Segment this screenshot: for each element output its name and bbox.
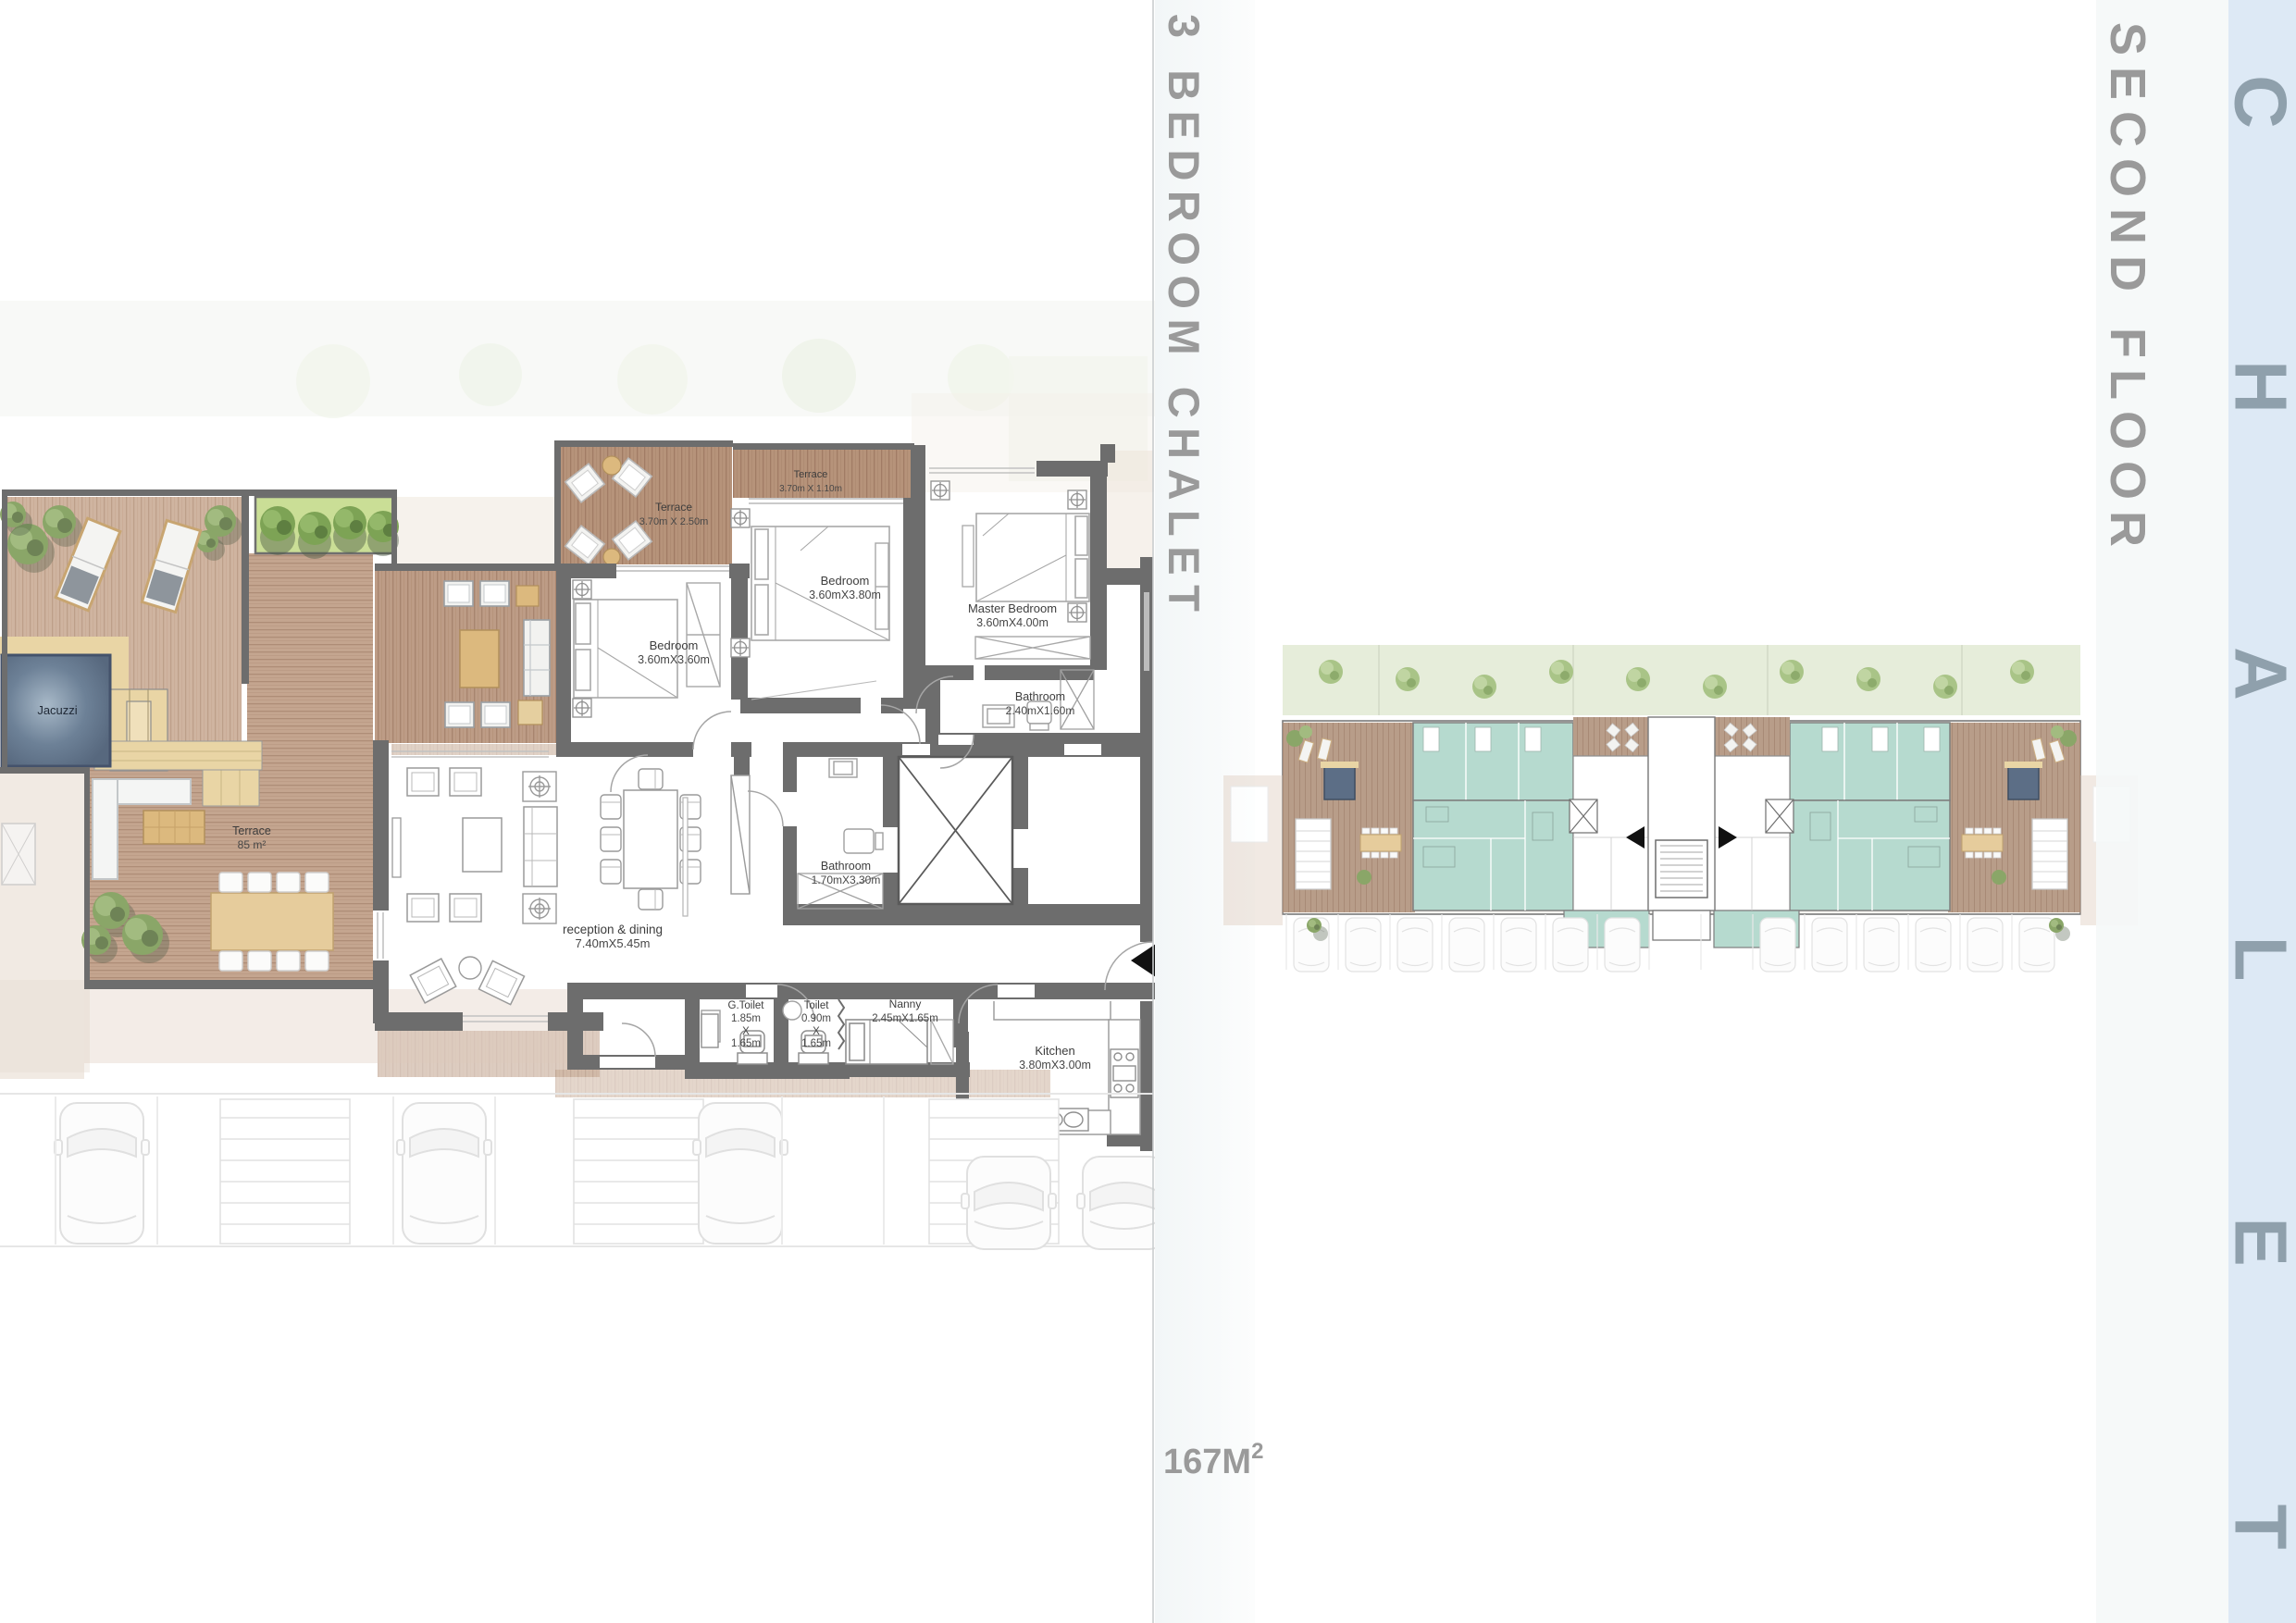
- svg-text:7.40mX5.45m: 7.40mX5.45m: [576, 936, 651, 950]
- svg-text:3.70m X 1.10m: 3.70m X 1.10m: [779, 484, 842, 494]
- svg-text:Bedroom: Bedroom: [650, 638, 699, 652]
- svg-text:3.80mX3.00m: 3.80mX3.00m: [1019, 1059, 1091, 1072]
- svg-text:X: X: [742, 1026, 750, 1037]
- svg-text:T: T: [2220, 1505, 2296, 1550]
- svg-text:1.70mX3.30m: 1.70mX3.30m: [812, 873, 881, 886]
- svg-text:C: C: [2220, 75, 2296, 129]
- svg-text:0.90m: 0.90m: [801, 1013, 831, 1024]
- svg-text:Kitchen: Kitchen: [1035, 1044, 1074, 1058]
- svg-text:E: E: [2220, 1217, 2296, 1266]
- svg-text:1.65m: 1.65m: [731, 1038, 761, 1049]
- svg-text:2.40mX1.60m: 2.40mX1.60m: [1006, 704, 1075, 717]
- svg-text:Terrace: Terrace: [794, 469, 828, 480]
- svg-text:H: H: [2220, 360, 2296, 414]
- svg-text:85 m²: 85 m²: [238, 838, 267, 851]
- svg-text:1.65m: 1.65m: [801, 1038, 831, 1049]
- svg-text:3 BEDROOM CHALET: 3 BEDROOM CHALET: [1160, 14, 1209, 621]
- svg-text:reception & dining: reception & dining: [563, 923, 663, 936]
- svg-text:1.85m: 1.85m: [731, 1013, 761, 1024]
- svg-text:G.Toilet: G.Toilet: [728, 1000, 765, 1011]
- svg-text:Terrace: Terrace: [655, 501, 692, 514]
- svg-text:2.45mX1.65m: 2.45mX1.65m: [872, 1013, 938, 1024]
- svg-text:3.60mX4.00m: 3.60mX4.00m: [976, 616, 1049, 629]
- svg-text:L: L: [2220, 936, 2296, 982]
- svg-text:3.70m X 2.50m: 3.70m X 2.50m: [639, 516, 709, 527]
- svg-text:Bathroom: Bathroom: [821, 860, 871, 873]
- svg-text:Jacuzzi: Jacuzzi: [37, 703, 77, 717]
- svg-text:A: A: [2220, 647, 2296, 700]
- svg-text:X: X: [813, 1026, 820, 1037]
- svg-text:3.60mX3.60m: 3.60mX3.60m: [638, 653, 710, 666]
- svg-text:Terrace: Terrace: [232, 824, 271, 837]
- svg-text:Master Bedroom: Master Bedroom: [968, 601, 1057, 615]
- svg-text:167M2: 167M2: [1163, 1439, 1263, 1481]
- svg-text:Bedroom: Bedroom: [821, 574, 870, 588]
- svg-text:SECOND FLOOR: SECOND FLOOR: [2100, 22, 2155, 558]
- svg-text:Nanny: Nanny: [889, 997, 922, 1010]
- svg-text:Toilet: Toilet: [804, 1000, 830, 1011]
- svg-text:3.60mX3.80m: 3.60mX3.80m: [809, 588, 881, 601]
- svg-text:Bathroom: Bathroom: [1015, 690, 1065, 703]
